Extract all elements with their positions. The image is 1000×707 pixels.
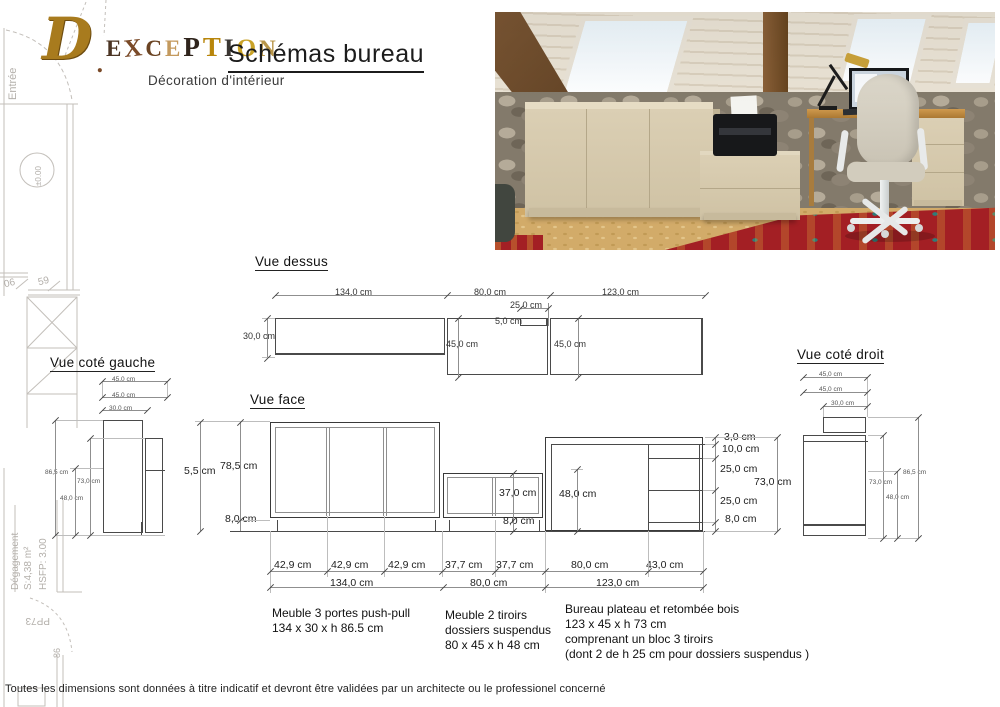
dim-label: 37,0 cm: [499, 488, 536, 500]
dim-label: 86,5 cm: [903, 469, 926, 476]
dim-tick: [575, 374, 582, 381]
dim-label: 45,0 cm: [112, 376, 135, 383]
dim-label: 78,5 cm: [220, 461, 257, 473]
dim-line: [386, 427, 387, 516]
dim-line: [458, 318, 459, 377]
note-line: 123 x 45 x h 73 cm: [565, 617, 809, 632]
plan-lines: [57, 655, 63, 707]
dim-line: [868, 417, 918, 418]
logo-tagline: Décoration d'intérieur: [148, 73, 285, 88]
plan-x-brace: [27, 297, 77, 348]
logo-letter: E: [106, 36, 124, 62]
dim-label: 86,5 cm: [45, 469, 68, 476]
chair-backrest: [857, 74, 919, 166]
topview-notch-outline: [520, 318, 547, 326]
design-sheet: Entrée ±0.00 06 59 Dégagement S:4,38 m² …: [0, 0, 1000, 707]
chair-caster: [915, 224, 923, 232]
sideboard-top: [525, 102, 713, 109]
drawer-seam: [700, 188, 800, 189]
dim-label: 73,0 cm: [869, 479, 892, 486]
dim-label: 134,0 cm: [335, 288, 372, 298]
dim-line: [545, 531, 546, 593]
dim-line: [55, 420, 103, 421]
chair-base-leg: [850, 218, 920, 224]
dim-line: [868, 538, 918, 539]
dim-line: [823, 406, 867, 407]
dim-line: [326, 427, 327, 516]
cabinet-plinth: [704, 213, 796, 220]
frontview-sideboard-inner: [275, 427, 435, 513]
dim-line: [275, 295, 705, 296]
dim-label: 73,0 cm: [77, 478, 100, 485]
note-desk: Bureau plateau et retombée bois 123 x 45…: [565, 602, 809, 662]
dim-line: [75, 468, 76, 535]
plan-level-label: ±0.00: [34, 165, 43, 186]
note-line: 80 x 45 x h 48 cm: [445, 638, 551, 653]
dim-tick: [702, 292, 709, 299]
note-line: Meuble 3 portes push-pull: [272, 606, 410, 621]
desk-top: [807, 109, 965, 118]
dim-line: [513, 473, 514, 531]
heading-vue-face: Vue face: [250, 392, 305, 409]
note-line: comprenant un bloc 3 tiroirs: [565, 632, 809, 647]
dim-line: [777, 437, 778, 531]
heading-vue-dessus: Vue dessus: [255, 254, 328, 271]
dim-line: [200, 422, 201, 531]
logo-letter: T: [203, 32, 224, 63]
dim-line: [648, 490, 703, 491]
cabinet-top: [700, 151, 800, 155]
page-title: Schémas bureau: [228, 40, 424, 73]
dim-line: [803, 392, 867, 393]
dim-label: 30,0 cm: [243, 332, 275, 342]
dim-line: [270, 587, 703, 588]
dim-line: [868, 471, 897, 472]
dim-line: [230, 531, 710, 532]
dim-label: 45,0 cm: [554, 340, 586, 350]
lamp-head: [844, 53, 870, 69]
dim-line: [495, 477, 496, 516]
topview-sideboard-outline: [275, 318, 445, 355]
dim-label: 5,0 cm: [495, 317, 522, 327]
dim-label: 25,0 cm: [510, 301, 542, 311]
note-line: Meuble 2 tiroirs: [445, 608, 551, 623]
dim-line: [329, 427, 330, 516]
skylight-window: [950, 18, 995, 88]
chair-caster: [881, 230, 889, 238]
dim-line: [867, 377, 868, 417]
printer-paper: [730, 95, 757, 116]
laptop-base: [843, 107, 913, 115]
plan-cote-59: 59: [37, 275, 51, 288]
dim-line: [141, 522, 142, 535]
logo-dot: .: [96, 52, 104, 78]
sideboard-front: [525, 109, 713, 217]
sideboard-side: [713, 109, 720, 219]
dim-label: 42,9 cm: [388, 560, 425, 572]
dim-line: [145, 470, 165, 471]
dim-line: [449, 520, 450, 531]
dim-label: 80,0 cm: [571, 560, 608, 572]
chair-caster: [847, 224, 855, 232]
chair-base-leg: [861, 197, 909, 236]
dim-line: [383, 427, 384, 516]
dim-line: [195, 421, 270, 422]
note-line: Bureau plateau et retombée bois: [565, 602, 809, 617]
laptop-document: [855, 74, 877, 102]
dim-line: [918, 417, 919, 538]
leftview-desk-outline: [145, 438, 163, 533]
dim-line: [703, 531, 704, 593]
dim-tick: [197, 528, 204, 535]
dim-line: [495, 520, 496, 577]
logo-letter: E: [165, 36, 183, 62]
dim-label: 30,0 cm: [109, 405, 132, 412]
plan-pp73-label: PP73: [25, 615, 50, 626]
skylight-window: [558, 16, 694, 98]
knit-pouf: [495, 184, 515, 242]
oriental-rug: [495, 202, 995, 250]
plan-degagement-label: Dégagement: [10, 533, 21, 590]
dim-label: 48,0 cm: [60, 495, 83, 502]
dim-line: [270, 531, 271, 593]
plan-cote-86: 86: [52, 648, 62, 658]
desk-plinth: [914, 200, 962, 206]
dim-tick: [144, 407, 151, 414]
dim-line: [648, 522, 703, 523]
dim-label: 10,0 cm: [722, 444, 759, 456]
rug-corner: [495, 235, 543, 250]
dim-label: 45,0 cm: [446, 340, 478, 350]
chair-armrest: [917, 128, 928, 171]
heading-vue-gauche: Vue coté gauche: [50, 355, 155, 372]
note-line: (dont 2 de h 25 cm pour dossiers suspend…: [565, 647, 809, 662]
printer-slot: [719, 128, 771, 135]
dim-label: 8,0 cm: [725, 514, 757, 526]
roof-beam: [763, 12, 788, 157]
stone-wall: [495, 92, 995, 220]
leftview-body-outline: [103, 420, 143, 533]
disclaimer-text: Toutes les dimensions sont données à tit…: [5, 683, 606, 695]
wood-floor: [495, 208, 995, 250]
dim-line: [897, 471, 898, 538]
roof-beam: [495, 12, 585, 146]
desk-leg: [809, 118, 814, 206]
rightview-plinth-outline: [803, 525, 866, 536]
lamp-arm: [829, 64, 849, 90]
chair-column: [880, 180, 889, 220]
dim-tick: [774, 528, 781, 535]
drawer-seam: [912, 172, 964, 173]
dim-tick: [164, 394, 171, 401]
render-photo: [495, 12, 995, 250]
dim-line: [102, 397, 167, 398]
dim-label: 25,0 cm: [720, 464, 757, 476]
dim-line: [55, 535, 165, 536]
dim-label: 42,9 cm: [274, 560, 311, 572]
logo-letter-d: D: [42, 10, 92, 68]
plan-cote-06: 06: [3, 277, 17, 290]
dim-line: [823, 406, 824, 417]
dim-line: [883, 435, 884, 538]
drawer-seam: [912, 144, 964, 145]
frontview-desk-outline: [545, 437, 703, 531]
dim-line: [648, 458, 703, 459]
dim-line: [240, 422, 241, 531]
dim-line: [55, 420, 56, 535]
chair-base-leg: [861, 205, 909, 244]
heading-vue-droit: Vue coté droit: [797, 347, 884, 364]
dim-label: 37,7 cm: [496, 560, 533, 572]
dim-line: [267, 318, 268, 358]
printer-cabinet: [700, 155, 800, 220]
chair-armrest: [836, 130, 849, 173]
dim-line: [715, 437, 716, 531]
dim-label: 8,0 cm: [503, 516, 535, 528]
dim-label: 25,0 cm: [720, 496, 757, 508]
plan-entree-label: Entrée: [7, 68, 19, 100]
lamp-arm: [817, 75, 836, 106]
dim-line: [551, 444, 705, 445]
logo-letter: X: [123, 34, 147, 64]
dim-line: [520, 308, 548, 309]
dim-line: [384, 516, 385, 577]
chair-seat: [847, 162, 925, 182]
dim-line: [102, 410, 147, 411]
dim-label: 42,9 cm: [331, 560, 368, 572]
dim-line: [90, 438, 91, 535]
dim-line: [577, 469, 578, 531]
dim-label: 80,0 cm: [474, 288, 506, 298]
note-line: dossiers suspendus: [445, 623, 551, 638]
dim-line: [277, 520, 278, 531]
laptop-screen: [849, 68, 909, 110]
dim-line: [492, 477, 493, 516]
dim-label: 43,0 cm: [646, 560, 683, 572]
dim-line: [435, 520, 436, 531]
plan-surface-label: S:4,38 m²: [23, 546, 34, 590]
door-seam: [586, 109, 587, 217]
logo-letter: P: [183, 32, 203, 63]
rightview-return-outline: [823, 417, 866, 433]
logo-letter: C: [145, 36, 165, 62]
dim-tick: [915, 535, 922, 542]
dim-label: 73,0 cm: [754, 477, 791, 489]
door-seam: [649, 109, 650, 217]
note-drawer-cabinet: Meuble 2 tiroirs dossiers suspendus 80 x…: [445, 608, 551, 653]
dim-line: [270, 571, 703, 572]
printer: [713, 114, 777, 156]
skylight-window: [836, 14, 932, 86]
dim-label: 37,7 cm: [445, 560, 482, 572]
background-floorplan: Entrée ±0.00 06 59 Dégagement S:4,38 m² …: [0, 0, 130, 707]
dim-line: [551, 444, 552, 531]
dim-label: 45,0 cm: [112, 392, 135, 399]
plan-wall: [67, 104, 73, 290]
desk-drawer-unit: [912, 118, 964, 206]
dim-line: [102, 381, 167, 382]
dim-label: 123,0 cm: [602, 288, 639, 298]
dim-tick: [455, 374, 462, 381]
lamp-base: [819, 106, 837, 110]
note-sideboard: Meuble 3 portes push-pull 134 x 30 x h 8…: [272, 606, 410, 636]
dim-line: [803, 441, 868, 442]
dim-line: [578, 318, 579, 377]
rightview-body-outline: [803, 435, 866, 525]
wood-ceiling: [495, 12, 995, 132]
dim-line: [90, 438, 145, 439]
chair-shadow: [845, 230, 935, 242]
plan-hsfp-label: HSFP: 3.00: [38, 538, 49, 590]
plan-dashed-line: [104, 0, 106, 36]
sideboard-plinth: [529, 208, 709, 217]
note-line: 134 x 30 x h 86.5 cm: [272, 621, 410, 636]
dim-line: [803, 377, 867, 378]
dim-line: [327, 516, 328, 577]
dim-line: [539, 520, 540, 531]
